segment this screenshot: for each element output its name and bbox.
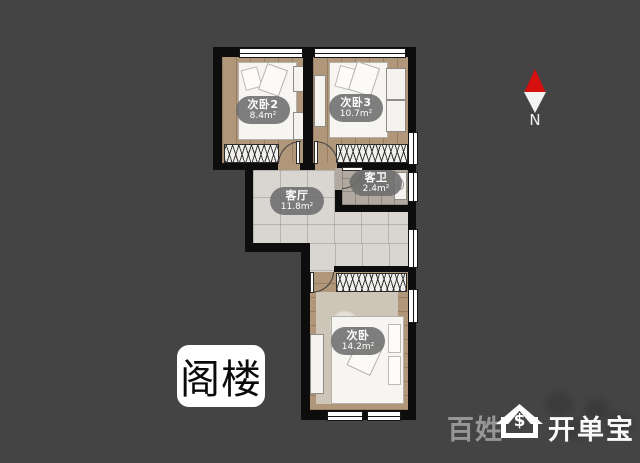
room-area: 11.8m² xyxy=(281,202,313,212)
bedroom1-wardrobe xyxy=(336,273,407,292)
door-leaf-bedroom1 xyxy=(310,272,314,293)
wall-bedrooms-bottom-mid xyxy=(300,163,315,170)
window-top-bedroom3 xyxy=(314,48,406,58)
bedroom1-pillow-bottom xyxy=(388,356,401,385)
bedroom2-wardrobe xyxy=(224,144,279,163)
bedroom1-pillow-top xyxy=(388,324,401,353)
room-area: 2.4m² xyxy=(363,184,390,194)
bedroom3-desk xyxy=(314,75,326,127)
compass-label: N xyxy=(523,111,547,129)
room-name: 次卧2 xyxy=(247,99,278,112)
door-threshold-bedroom3 xyxy=(315,163,337,170)
dollar-symbol: $ xyxy=(496,411,543,431)
north-arrow-tail-icon xyxy=(524,92,546,113)
wall-bedroom1-left xyxy=(301,268,310,420)
wall-bedroom1-top xyxy=(334,266,408,272)
window-right-bedroom1 xyxy=(408,289,418,323)
watermark-brand-left: 百姓 xyxy=(447,408,503,447)
room-label-bathroom: 客卫 2.4m² xyxy=(350,170,402,196)
room-name: 次卧 xyxy=(347,330,370,343)
window-right-bathroom xyxy=(408,172,418,202)
door-threshold-bedroom2 xyxy=(278,163,300,170)
room-label-living: 客厅 11.8m² xyxy=(270,187,324,215)
room-name: 客卫 xyxy=(365,172,388,185)
floor-level-badge: 阁楼 xyxy=(177,345,265,407)
bedroom3-closet-bottom xyxy=(386,100,406,132)
room-area: 14.2m² xyxy=(342,342,374,352)
room-label-bedroom1: 次卧 14.2m² xyxy=(331,327,385,355)
room-name: 次卧3 xyxy=(340,97,371,110)
room-area: 8.4m² xyxy=(250,111,277,121)
wall-left-upper xyxy=(213,47,222,170)
wall-step-horizontal xyxy=(245,243,308,252)
room-label-bedroom3: 次卧3 10.7m² xyxy=(329,94,383,122)
door-leaf-bedroom2 xyxy=(296,141,300,164)
wall-bathroom-bottom xyxy=(335,205,416,212)
wall-living-left xyxy=(245,163,253,252)
window-bottom-left xyxy=(327,411,363,421)
room-name: 客厅 xyxy=(286,190,309,203)
room-area: 10.7m² xyxy=(340,109,372,119)
wall-between-bedrooms xyxy=(303,47,313,163)
house-dollar-icon: $ xyxy=(496,404,543,438)
bedroom1-bench xyxy=(310,334,324,394)
floorplan-canvas: 次卧2 8.4m² 次卧3 10.7m² 客厅 11.8m² 客卫 2.4m² … xyxy=(0,0,640,463)
bedroom3-wardrobe xyxy=(336,144,408,163)
door-leaf-bedroom3 xyxy=(314,141,318,164)
bedroom3-closet-top xyxy=(386,68,406,100)
room-label-bedroom2: 次卧2 8.4m² xyxy=(236,96,290,124)
window-top-bedroom2 xyxy=(239,48,303,58)
window-right-bedroom3 xyxy=(408,132,418,165)
window-right-hallway xyxy=(408,229,418,268)
north-arrow-icon xyxy=(524,69,546,93)
watermark-brand-right: 开单宝 xyxy=(548,408,635,447)
door-threshold-bathroom xyxy=(335,168,342,190)
window-bottom-right xyxy=(367,411,401,421)
